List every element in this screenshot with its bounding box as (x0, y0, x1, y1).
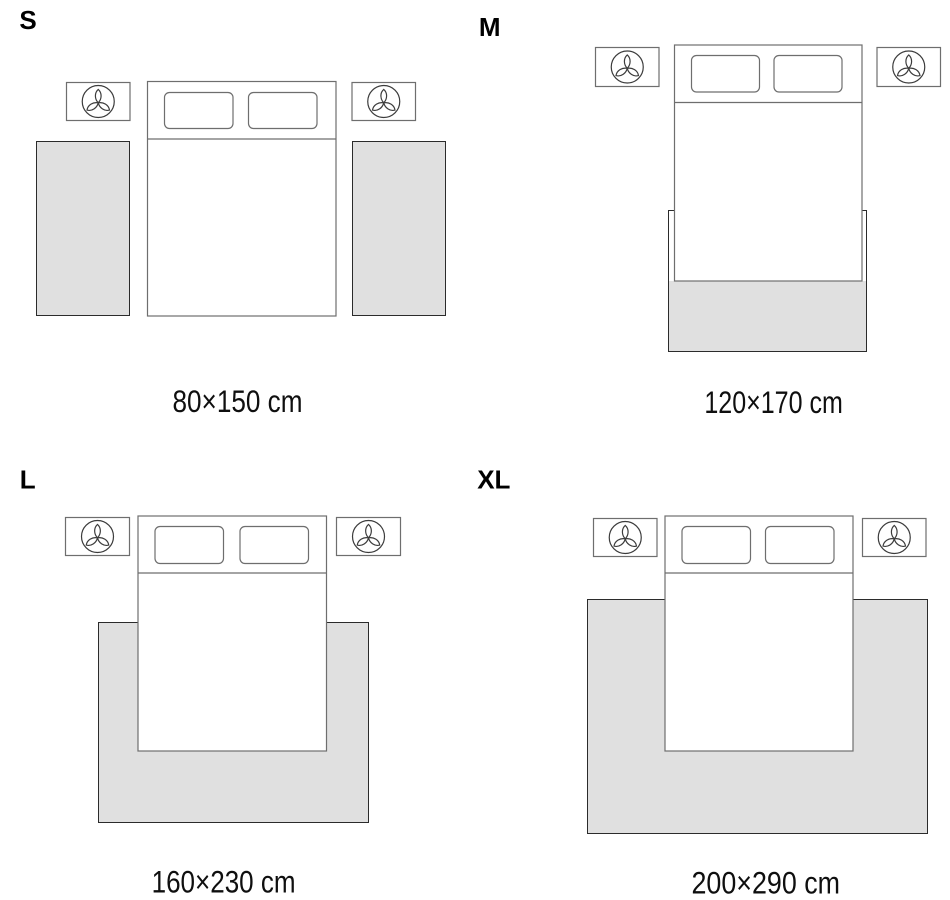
svg-text:L: L (20, 464, 36, 494)
svg-text:80×150 cm: 80×150 cm (173, 383, 303, 419)
svg-text:XL: XL (477, 465, 510, 495)
svg-text:S: S (19, 5, 36, 35)
svg-text:160×230 cm: 160×230 cm (152, 863, 296, 899)
svg-text:M: M (479, 12, 501, 42)
svg-text:120×170 cm: 120×170 cm (704, 384, 843, 420)
svg-text:200×290 cm: 200×290 cm (692, 865, 841, 900)
